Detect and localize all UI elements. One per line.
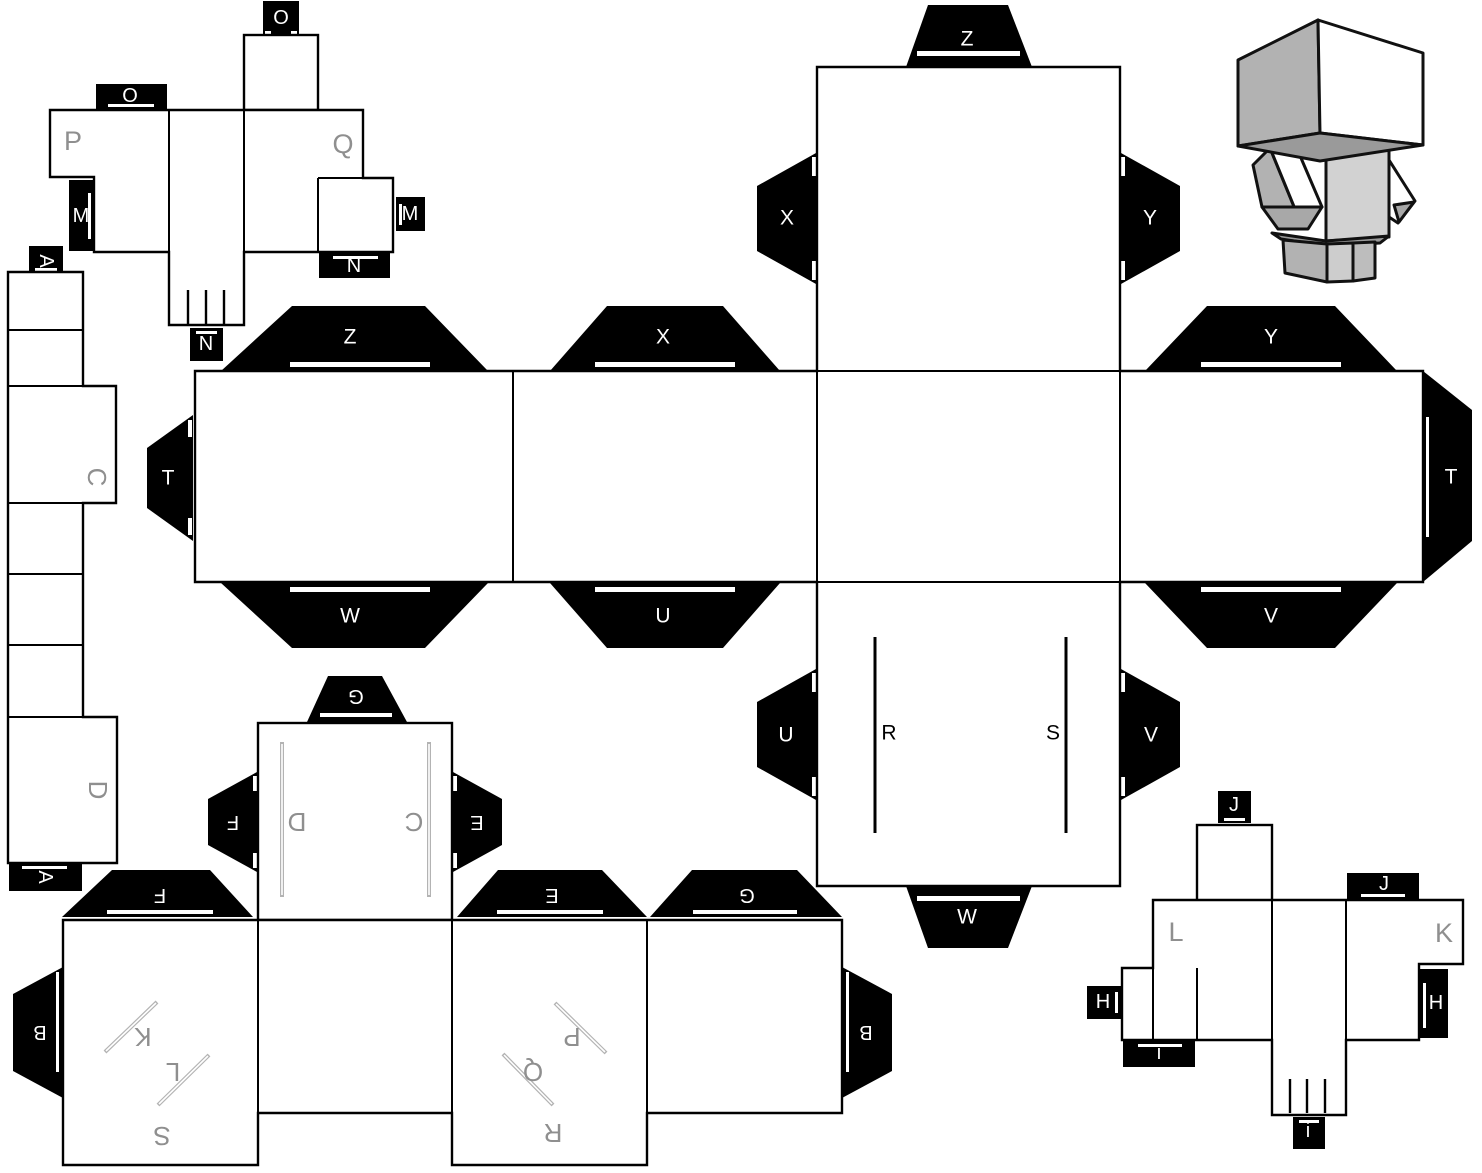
tab-letter: W [340,605,360,628]
glue-line [290,362,430,367]
tab-letter: A [34,870,56,884]
slot-letter: C [405,807,424,837]
tab-letter: i [1157,1042,1161,1064]
glue-line [1423,983,1426,1028]
glue-notch [253,853,257,868]
assembled-preview [1238,20,1423,282]
tab-letter: F [154,884,166,906]
piece-side-strip: A C D A [8,246,117,891]
tab-letter: Y [1143,207,1157,230]
tab-letter: V [1264,605,1278,628]
face-strip [8,272,117,863]
preview-legs-front [1327,243,1353,282]
slot-letter: P [563,1022,580,1052]
slit-letter: S [1046,722,1060,745]
glue-notch [812,777,816,796]
slot-letter: L [166,1057,180,1087]
preview-arm-right-bottom [1394,202,1414,222]
slit-letter: R [881,722,896,745]
glue-notch [188,420,192,437]
tab-letter: N [347,255,361,277]
tab-letter: i [1306,1120,1310,1142]
glue-line [1426,417,1429,537]
glue-line [497,910,603,914]
tab-letter: V [1144,724,1158,747]
tab-letter: J [1229,794,1239,816]
tab-letter: Z [961,28,974,51]
glue-notch [812,261,816,280]
tab-letter: A [35,254,57,268]
face-letter: C [82,468,112,487]
preview-arm-left-bottom [1262,207,1322,229]
glue-line [917,896,1020,901]
tab-letter: F [227,811,239,833]
tab-letter: B [33,1021,46,1043]
tab-letter: M [73,205,90,227]
tab-letter: H [1096,991,1110,1013]
face-neck [244,35,318,110]
face-neck [1197,825,1272,902]
glue-line [846,972,849,1072]
glue-line [35,268,57,271]
tab-letter: Z [344,326,357,349]
preview-leg-left [1283,240,1327,282]
tab-letter: O [122,85,138,107]
face-letter: S [153,1121,170,1151]
papercraft-sheet: O O P Q M M N N A C D A [0,0,1482,1173]
tab-letter: J [1379,873,1389,895]
glue-line [595,587,735,592]
tab-letter: T [162,467,175,490]
glue-notch [812,673,816,692]
glue-notch [253,776,257,791]
tab-letter: N [199,333,213,355]
tab-letter: E [470,811,483,833]
slot-letter: Q [523,1057,543,1087]
slot-letter: K [134,1022,152,1052]
tab-letter: X [656,326,670,349]
glue-line [290,587,430,592]
slot-letter: D [288,807,307,837]
piece-foot-box: J J L K H H i i [1087,791,1463,1149]
tab-letter: Y [1264,326,1278,349]
glue-notch [188,518,192,535]
glue-line [1201,362,1341,367]
preview-head-left-face [1238,20,1320,146]
face-letter: L [1168,917,1183,947]
face-letter: D [83,781,113,800]
glue-notch [1121,157,1125,176]
tab-letter: T [1445,466,1458,489]
face-letter: R [544,1118,563,1148]
tab-letter: G [739,884,755,906]
preview-head-front-face [1318,20,1423,145]
tab-letter: H [1429,992,1443,1014]
tab-letter: E [545,884,558,906]
tab-letter: X [780,207,794,230]
glue-line [1224,818,1245,821]
glue-notch [812,157,816,176]
glue-line [1115,992,1118,1013]
face-letter: Q [332,129,353,159]
tab-letter: O [273,7,289,29]
tab-letter: B [859,1021,872,1043]
glue-line [595,362,735,367]
glue-line [22,866,67,869]
face-letter: P [64,126,82,156]
template-canvas: O O P Q M M N N A C D A [0,0,1482,1173]
glue-line [320,713,392,717]
tab-letter: U [778,724,793,747]
face-letter: K [1435,918,1453,948]
glue-notch [1121,261,1125,280]
glue-line [107,910,213,914]
glue-notch [1121,777,1125,796]
tab-letter: M [402,203,419,225]
glue-line [56,972,59,1072]
glue-notch [453,776,457,791]
tab-letter: U [655,605,670,628]
glue-notch [1121,673,1125,692]
glue-line [1201,587,1341,592]
tab-letter: W [957,906,977,929]
glue-line [693,910,797,914]
glue-notch [453,853,457,868]
glue-line [917,51,1020,56]
preview-leg-right [1353,242,1375,281]
tab-letter: G [348,685,364,707]
